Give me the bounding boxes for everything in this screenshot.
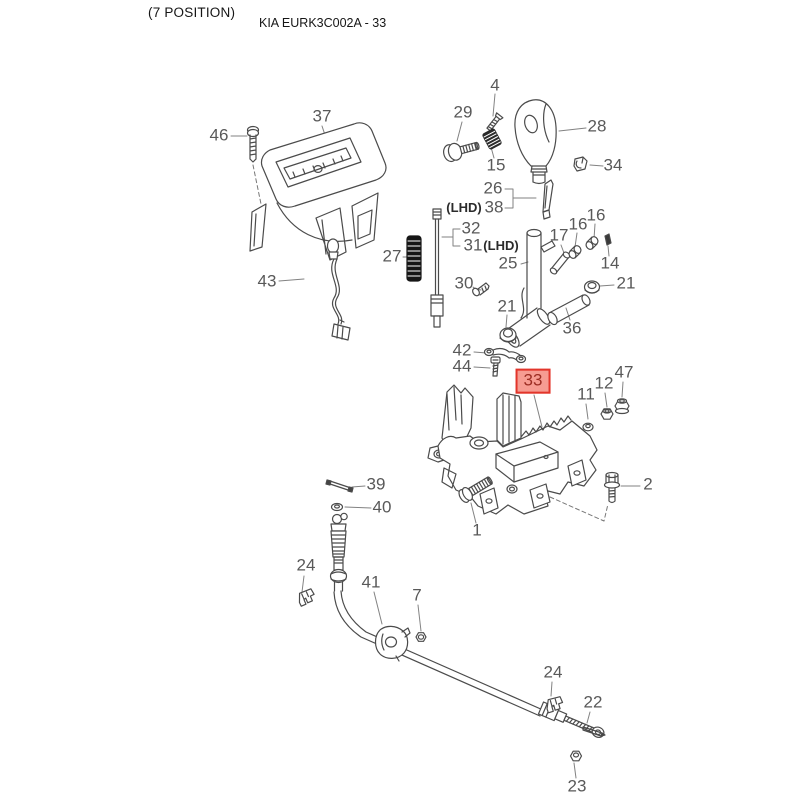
part-23-nut-art: [571, 751, 582, 761]
callout-21[interactable]: 21: [498, 298, 517, 317]
callout-46[interactable]: 46: [210, 127, 229, 146]
part-24-left-clip-art: [297, 588, 316, 606]
callout-41[interactable]: 41: [362, 574, 381, 593]
part-26-38-wedge-art: [543, 180, 553, 219]
callout-40[interactable]: 40: [373, 499, 392, 518]
callout-39[interactable]: 39: [367, 476, 386, 495]
part-44-screw-art: [491, 357, 500, 376]
part-33-bracket-art: [428, 385, 597, 514]
callout-1[interactable]: 1: [472, 522, 481, 541]
callout-23[interactable]: 23: [568, 778, 587, 797]
callout-7[interactable]: 7: [412, 587, 421, 606]
callout-24[interactable]: 24: [297, 557, 316, 576]
callout-15[interactable]: 15: [487, 157, 506, 176]
callout-24[interactable]: 24: [544, 664, 563, 683]
callout-26[interactable]: 26: [484, 180, 503, 199]
part-12-nut-art: [601, 409, 613, 419]
part-16-bushings-art: [568, 235, 600, 259]
part-39-pin-art: [326, 480, 353, 492]
callout-44[interactable]: 44: [453, 358, 472, 377]
part-41-cable-upper-art: [331, 513, 348, 591]
part-28-shift-knob-art: [515, 100, 556, 184]
part-14-pin-art: [605, 234, 611, 245]
part-40-washer-art: [332, 504, 343, 511]
callout-38[interactable]: 38: [485, 199, 504, 218]
part-32-31-rod-art: [431, 209, 443, 327]
diagram-line-art: [0, 0, 800, 800]
callout-16[interactable]: 16: [587, 207, 606, 226]
callout-36[interactable]: 36: [563, 320, 582, 339]
part-46-screw-art: [248, 127, 259, 163]
lhd-note: (LHD): [446, 201, 481, 215]
part-41-cable-art: [334, 591, 543, 716]
part-24-right-clip-art: [546, 697, 563, 713]
part-7-grommet-art: [376, 626, 427, 661]
part-11-washer-art: [583, 423, 593, 431]
part-43-lamp-wire-art: [328, 239, 351, 340]
callout-17[interactable]: 17: [550, 227, 569, 246]
callout-22[interactable]: 22: [584, 694, 603, 713]
callout-28[interactable]: 28: [588, 118, 607, 137]
callout-16[interactable]: 16: [569, 216, 588, 235]
part-15-spring-art: [482, 128, 501, 149]
callout-25[interactable]: 25: [499, 255, 518, 274]
callout-4[interactable]: 4: [490, 77, 499, 96]
part-2-bolt-art: [605, 473, 620, 503]
part-27-spring-art: [407, 236, 421, 281]
part-21-left-bushing-art: [500, 328, 516, 342]
lhd-note: (LHD): [483, 239, 518, 253]
part-37-indicator-panel-art: [250, 123, 386, 260]
callout-34[interactable]: 34: [604, 157, 623, 176]
part-17-pin-art: [549, 251, 571, 275]
part-47-nut-art: [615, 399, 629, 414]
callout-47[interactable]: 47: [615, 364, 634, 383]
catalog-title: KIA EURK3C002A - 33: [259, 16, 386, 30]
position-note: (7 POSITION): [148, 5, 235, 20]
callout-43[interactable]: 43: [258, 273, 277, 292]
callout-37[interactable]: 37: [313, 108, 332, 127]
callout-30[interactable]: 30: [455, 275, 474, 294]
part-34-clip-art: [574, 157, 587, 171]
part-29-bolt-art: [442, 137, 481, 163]
callout-2[interactable]: 2: [643, 476, 652, 495]
callout-29[interactable]: 29: [454, 104, 473, 123]
callout-14[interactable]: 14: [601, 255, 620, 274]
callout-31[interactable]: 31: [464, 237, 483, 256]
part-21-right-bushing-art: [585, 281, 600, 293]
callout-27[interactable]: 27: [383, 248, 402, 267]
callout-11[interactable]: 11: [577, 386, 595, 405]
callout-21[interactable]: 21: [617, 275, 636, 294]
parts-diagram-page: (7 POSITION) KIA EURK3C002A - 33 4637434…: [0, 0, 800, 800]
callout-33-selected[interactable]: 33: [516, 369, 551, 394]
callout-12[interactable]: 12: [595, 375, 614, 394]
